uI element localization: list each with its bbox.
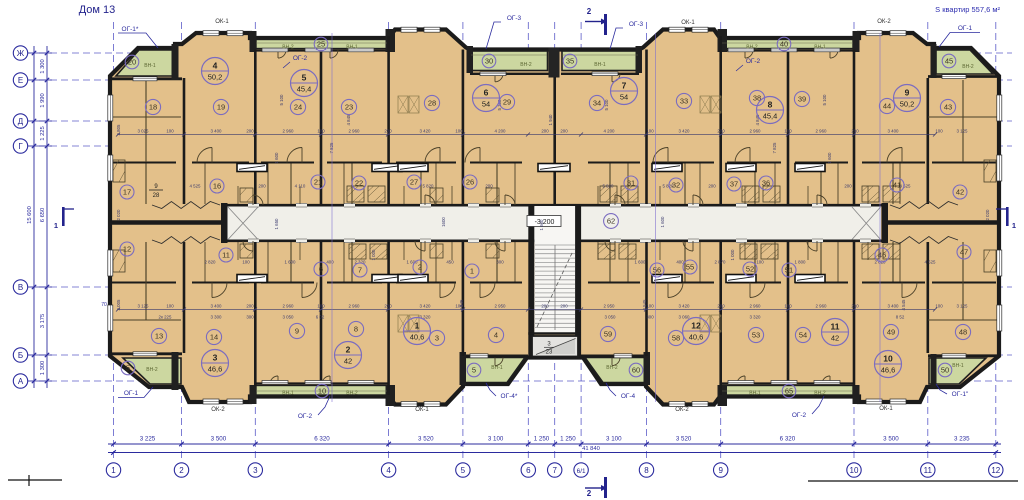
svg-text:200: 200 — [258, 184, 266, 189]
svg-text:55: 55 — [686, 263, 694, 272]
svg-text:3: 3 — [213, 353, 218, 363]
svg-text:ВН-1: ВН-1 — [282, 390, 294, 396]
svg-text:12: 12 — [691, 321, 701, 331]
svg-text:200: 200 — [851, 304, 859, 309]
svg-text:1600: 1600 — [441, 217, 446, 227]
svg-text:ОК-2: ОК-2 — [675, 407, 689, 413]
svg-text:А: А — [18, 377, 24, 386]
svg-text:4 525: 4 525 — [190, 184, 202, 189]
svg-text:ВН-2: ВН-2 — [282, 44, 294, 50]
svg-text:200: 200 — [485, 184, 493, 189]
svg-text:300: 300 — [246, 315, 254, 320]
svg-text:3 320: 3 320 — [420, 315, 432, 320]
svg-text:100: 100 — [784, 304, 792, 309]
svg-text:28: 28 — [153, 193, 160, 199]
svg-text:3 050: 3 050 — [283, 315, 295, 320]
svg-text:400: 400 — [326, 260, 334, 265]
svg-text:5: 5 — [472, 366, 476, 375]
svg-text:7 825: 7 825 — [329, 142, 334, 154]
svg-text:17: 17 — [123, 188, 131, 197]
svg-text:200: 200 — [246, 304, 254, 309]
svg-text:2 870: 2 870 — [715, 260, 727, 265]
svg-text:42: 42 — [956, 188, 964, 197]
svg-text:ОГ-2: ОГ-2 — [298, 413, 313, 420]
svg-text:4 545: 4 545 — [901, 299, 906, 311]
svg-text:59: 59 — [604, 330, 612, 339]
svg-text:1: 1 — [54, 221, 58, 230]
svg-text:Б: Б — [18, 351, 23, 360]
svg-text:60: 60 — [632, 366, 640, 375]
svg-text:3 520: 3 520 — [676, 436, 692, 443]
svg-text:52: 52 — [746, 265, 754, 274]
svg-text:65: 65 — [785, 387, 793, 396]
svg-text:23: 23 — [345, 103, 353, 112]
svg-text:7: 7 — [622, 81, 627, 91]
svg-text:11: 11 — [831, 322, 840, 332]
svg-text:3 235: 3 235 — [954, 436, 970, 443]
svg-text:1 000: 1 000 — [730, 249, 735, 261]
svg-text:Д: Д — [18, 117, 24, 126]
svg-text:2 020: 2 020 — [985, 209, 990, 221]
svg-text:9: 9 — [718, 466, 723, 475]
svg-text:4: 4 — [386, 466, 391, 475]
svg-text:2 020: 2 020 — [116, 209, 121, 221]
svg-text:2 960: 2 960 — [349, 129, 361, 134]
svg-text:53: 53 — [752, 331, 760, 340]
svg-text:ВН-1: ВН-1 — [491, 365, 503, 371]
svg-text:31: 31 — [627, 179, 635, 188]
svg-text:4 525: 4 525 — [925, 260, 937, 265]
svg-text:12: 12 — [123, 245, 131, 254]
svg-text:3 400: 3 400 — [888, 129, 900, 134]
svg-text:12: 12 — [991, 466, 1000, 475]
svg-text:15 600: 15 600 — [27, 206, 33, 224]
svg-text:43: 43 — [944, 103, 952, 112]
svg-text:1 650: 1 650 — [274, 218, 279, 230]
svg-text:200: 200 — [844, 184, 852, 189]
svg-text:ОГ-3: ОГ-3 — [507, 15, 522, 22]
svg-text:49: 49 — [887, 328, 895, 337]
svg-text:3 400: 3 400 — [211, 304, 223, 309]
svg-text:50: 50 — [941, 366, 949, 375]
svg-text:1 300: 1 300 — [40, 361, 46, 376]
svg-text:100: 100 — [756, 260, 764, 265]
svg-text:46,6: 46,6 — [208, 365, 223, 374]
svg-text:100: 100 — [166, 304, 174, 309]
svg-text:2 960: 2 960 — [750, 304, 762, 309]
svg-text:54: 54 — [620, 93, 628, 102]
svg-text:4 545: 4 545 — [459, 299, 464, 311]
svg-text:ВН-2: ВН-2 — [346, 390, 358, 396]
svg-text:2 820: 2 820 — [205, 260, 217, 265]
svg-text:13: 13 — [155, 332, 163, 341]
svg-text:41 840: 41 840 — [582, 446, 600, 452]
svg-text:100: 100 — [317, 129, 325, 134]
svg-text:3 175: 3 175 — [40, 314, 46, 329]
svg-text:200: 200 — [246, 129, 254, 134]
svg-text:3 125: 3 125 — [138, 304, 150, 309]
svg-text:100: 100 — [784, 129, 792, 134]
svg-text:ОГ-2: ОГ-2 — [746, 58, 761, 65]
svg-text:1: 1 — [1012, 221, 1016, 230]
svg-text:6/1: 6/1 — [577, 468, 586, 475]
svg-text:2: 2 — [587, 489, 592, 498]
svg-text:4 200: 4 200 — [604, 129, 616, 134]
svg-text:47: 47 — [960, 248, 968, 257]
svg-text:40,6: 40,6 — [689, 333, 704, 342]
svg-text:54: 54 — [482, 100, 490, 109]
svg-text:3 400: 3 400 — [888, 304, 900, 309]
svg-text:Дом 13: Дом 13 — [79, 4, 116, 16]
svg-text:3 025: 3 025 — [138, 129, 150, 134]
svg-text:200: 200 — [717, 129, 725, 134]
svg-text:200: 200 — [560, 304, 568, 309]
svg-text:9: 9 — [295, 327, 299, 336]
svg-text:ОГ-1: ОГ-1 — [958, 25, 973, 32]
svg-text:2 960: 2 960 — [750, 129, 762, 134]
svg-text:S квартир 557,6 м²: S квартир 557,6 м² — [935, 5, 1000, 14]
svg-text:ВН-2: ВН-2 — [520, 62, 532, 68]
svg-text:ВН-1: ВН-1 — [346, 44, 358, 50]
svg-text:29: 29 — [503, 98, 511, 107]
svg-text:3 125: 3 125 — [957, 129, 969, 134]
svg-text:3 005: 3 005 — [116, 299, 121, 311]
svg-text:200: 200 — [560, 129, 568, 134]
svg-text:33: 33 — [680, 97, 688, 106]
svg-text:1 600: 1 600 — [274, 152, 279, 164]
svg-text:28: 28 — [428, 99, 436, 108]
svg-text:1 940: 1 940 — [548, 114, 553, 126]
svg-text:11: 11 — [924, 466, 933, 475]
svg-text:45,4: 45,4 — [763, 112, 778, 121]
svg-text:1 250: 1 250 — [560, 436, 576, 443]
svg-text:2: 2 — [587, 7, 592, 16]
svg-text:30: 30 — [485, 57, 493, 66]
svg-text:4 845: 4 845 — [346, 114, 351, 126]
svg-text:ВН-2: ВН-2 — [746, 44, 758, 50]
svg-text:45: 45 — [945, 57, 953, 66]
svg-text:6: 6 — [526, 466, 531, 475]
svg-text:10: 10 — [318, 387, 326, 396]
svg-text:1 600: 1 600 — [539, 219, 544, 231]
svg-text:40: 40 — [780, 40, 788, 49]
svg-text:2 960: 2 960 — [283, 304, 295, 309]
svg-text:ОГ-4*: ОГ-4* — [501, 393, 518, 400]
svg-text:58: 58 — [672, 334, 680, 343]
svg-text:2 960: 2 960 — [816, 304, 828, 309]
svg-text:450: 450 — [446, 260, 454, 265]
svg-text:39: 39 — [798, 95, 806, 104]
svg-text:8: 8 — [644, 466, 649, 475]
svg-text:1 800: 1 800 — [795, 260, 807, 265]
svg-text:51: 51 — [785, 266, 793, 275]
svg-text:2 950: 2 950 — [604, 304, 616, 309]
svg-text:3 420: 3 420 — [679, 129, 691, 134]
svg-text:100: 100 — [646, 129, 654, 134]
svg-text:62: 62 — [607, 217, 615, 226]
svg-text:ОК-1: ОК-1 — [415, 407, 429, 413]
svg-text:46,6: 46,6 — [881, 366, 896, 375]
svg-text:В: В — [18, 283, 23, 292]
svg-text:5: 5 — [461, 466, 466, 475]
svg-text:6: 6 — [319, 265, 323, 274]
svg-text:Е: Е — [18, 76, 23, 85]
svg-text:ВН-2: ВН-2 — [606, 365, 618, 371]
svg-text:4 525: 4 525 — [900, 184, 912, 189]
svg-text:200: 200 — [717, 304, 725, 309]
svg-text:1 600: 1 600 — [285, 260, 297, 265]
svg-text:1 600: 1 600 — [407, 260, 419, 265]
svg-text:3 060: 3 060 — [679, 315, 691, 320]
svg-text:5 100: 5 100 — [279, 94, 284, 106]
svg-text:20: 20 — [128, 58, 136, 67]
svg-text:1: 1 — [415, 321, 420, 331]
svg-text:54: 54 — [799, 331, 807, 340]
svg-text:ВН-2: ВН-2 — [814, 390, 826, 396]
svg-text:400: 400 — [676, 260, 684, 265]
svg-text:3 125: 3 125 — [957, 304, 969, 309]
svg-text:3: 3 — [253, 466, 258, 475]
svg-text:40,6: 40,6 — [410, 333, 425, 342]
svg-text:6 320: 6 320 — [314, 436, 330, 443]
svg-text:2: 2 — [179, 466, 184, 475]
svg-text:6 650: 6 650 — [40, 208, 46, 223]
svg-text:3: 3 — [435, 334, 439, 343]
svg-text:ОГ-1": ОГ-1" — [952, 391, 969, 398]
svg-text:200: 200 — [708, 184, 716, 189]
svg-text:1 225: 1 225 — [40, 126, 46, 141]
svg-text:10: 10 — [883, 354, 893, 364]
svg-text:22: 22 — [355, 179, 363, 188]
svg-text:ОК-1: ОК-1 — [879, 406, 893, 412]
svg-text:2к 225: 2к 225 — [159, 315, 172, 320]
svg-text:100: 100 — [455, 129, 463, 134]
svg-text:3 225: 3 225 — [140, 436, 156, 443]
svg-text:100: 100 — [935, 304, 943, 309]
svg-text:7: 7 — [358, 266, 362, 275]
svg-text:300: 300 — [646, 315, 654, 320]
svg-text:ВН-1: ВН-1 — [594, 62, 606, 68]
svg-text:34: 34 — [593, 99, 601, 108]
svg-text:4: 4 — [213, 61, 218, 71]
svg-text:200: 200 — [384, 304, 392, 309]
svg-text:ОГ-1*: ОГ-1* — [122, 26, 139, 33]
svg-text:5 820: 5 820 — [423, 184, 435, 189]
svg-text:6 02: 6 02 — [316, 315, 325, 320]
svg-text:18: 18 — [149, 103, 157, 112]
svg-text:32: 32 — [672, 181, 680, 190]
svg-text:4 200: 4 200 — [495, 129, 507, 134]
svg-text:5: 5 — [302, 73, 307, 83]
svg-text:3 320: 3 320 — [750, 315, 762, 320]
svg-text:2 960: 2 960 — [816, 129, 828, 134]
svg-text:3 400: 3 400 — [211, 129, 223, 134]
svg-text:100: 100 — [242, 260, 250, 265]
svg-text:8: 8 — [354, 325, 358, 334]
svg-text:ОГ-4: ОГ-4 — [621, 393, 636, 400]
svg-text:25: 25 — [317, 40, 325, 49]
svg-text:200: 200 — [541, 304, 549, 309]
svg-text:45,4: 45,4 — [297, 85, 312, 94]
svg-text:2 960: 2 960 — [283, 129, 295, 134]
svg-text:35: 35 — [566, 57, 574, 66]
svg-text:5 100: 5 100 — [822, 94, 827, 106]
svg-text:1: 1 — [111, 466, 116, 475]
svg-text:9: 9 — [905, 88, 910, 98]
svg-text:Г: Г — [18, 142, 23, 151]
svg-text:24: 24 — [294, 103, 302, 112]
svg-text:ВН-1: ВН-1 — [952, 363, 964, 369]
svg-text:6: 6 — [484, 88, 489, 98]
svg-text:ВН-2: ВН-2 — [146, 367, 158, 373]
svg-text:100: 100 — [317, 304, 325, 309]
svg-text:300: 300 — [496, 260, 504, 265]
svg-text:1 300: 1 300 — [40, 59, 46, 74]
svg-text:Ж: Ж — [17, 49, 25, 58]
svg-text:ВН-1: ВН-1 — [144, 63, 156, 69]
svg-text:3 420: 3 420 — [420, 129, 432, 134]
svg-text:ОК-1: ОК-1 — [681, 20, 695, 26]
svg-text:4 110: 4 110 — [295, 184, 306, 189]
svg-text:ОК-2: ОК-2 — [211, 407, 225, 413]
svg-text:4 545: 4 545 — [642, 299, 647, 311]
svg-text:3 050: 3 050 — [605, 315, 617, 320]
svg-text:1 250: 1 250 — [534, 436, 550, 443]
svg-text:1 000: 1 000 — [371, 249, 376, 261]
svg-text:2: 2 — [418, 263, 422, 272]
svg-text:50,2: 50,2 — [208, 73, 223, 82]
svg-text:3 500: 3 500 — [211, 436, 227, 443]
svg-text:-3.200: -3.200 — [535, 219, 555, 226]
svg-text:21: 21 — [314, 178, 322, 187]
svg-text:3 100: 3 100 — [488, 436, 504, 443]
svg-text:3 805: 3 805 — [116, 124, 121, 136]
svg-text:ОГ-2: ОГ-2 — [293, 55, 308, 62]
svg-text:100: 100 — [935, 129, 943, 134]
svg-text:ОК-1: ОК-1 — [215, 19, 229, 25]
svg-text:200: 200 — [851, 129, 859, 134]
svg-text:26: 26 — [466, 178, 474, 187]
svg-text:ВН-1: ВН-1 — [814, 44, 826, 50]
svg-text:2 960: 2 960 — [349, 304, 361, 309]
svg-text:56: 56 — [653, 266, 661, 275]
svg-text:14: 14 — [210, 333, 218, 342]
svg-text:ОК-2: ОК-2 — [877, 19, 891, 25]
svg-text:48: 48 — [959, 328, 967, 337]
svg-text:6 320: 6 320 — [780, 436, 796, 443]
svg-text:ОГ-3: ОГ-3 — [629, 21, 644, 28]
svg-text:200: 200 — [384, 129, 392, 134]
svg-text:50,2: 50,2 — [900, 100, 915, 109]
svg-text:ВН-1: ВН-1 — [749, 390, 761, 396]
svg-text:5 820: 5 820 — [603, 184, 615, 189]
svg-text:11: 11 — [222, 251, 230, 260]
svg-text:200: 200 — [541, 129, 549, 134]
svg-text:42: 42 — [344, 357, 352, 366]
svg-text:7 825: 7 825 — [772, 142, 777, 154]
svg-text:ОГ-2: ОГ-2 — [792, 412, 807, 419]
svg-text:1 990: 1 990 — [40, 93, 46, 108]
svg-text:46: 46 — [878, 251, 886, 260]
svg-text:3 520: 3 520 — [418, 436, 434, 443]
svg-text:23: 23 — [546, 350, 553, 356]
svg-text:42: 42 — [831, 334, 839, 343]
svg-text:1 600: 1 600 — [660, 216, 665, 228]
svg-text:8 52: 8 52 — [896, 315, 905, 320]
svg-text:19: 19 — [217, 103, 225, 112]
svg-text:70: 70 — [101, 302, 107, 308]
svg-text:2 950: 2 950 — [495, 304, 507, 309]
svg-text:2: 2 — [346, 345, 351, 355]
svg-text:10: 10 — [850, 466, 859, 475]
svg-text:3 500: 3 500 — [883, 436, 899, 443]
svg-text:27: 27 — [410, 178, 418, 187]
svg-text:100: 100 — [166, 129, 174, 134]
svg-text:ОГ-1: ОГ-1 — [124, 390, 139, 397]
svg-text:3 420: 3 420 — [679, 304, 691, 309]
svg-text:5: 5 — [126, 364, 130, 373]
svg-text:36: 36 — [762, 179, 770, 188]
svg-text:16: 16 — [213, 182, 221, 191]
svg-text:3 420: 3 420 — [420, 304, 432, 309]
svg-text:8: 8 — [768, 100, 773, 110]
svg-text:3 100: 3 100 — [606, 436, 622, 443]
svg-text:1 600: 1 600 — [635, 260, 647, 265]
svg-text:1: 1 — [470, 267, 474, 276]
svg-text:100: 100 — [646, 304, 654, 309]
svg-text:ВН-2: ВН-2 — [962, 64, 974, 70]
svg-text:1 600: 1 600 — [827, 152, 832, 164]
svg-text:41: 41 — [893, 181, 901, 190]
svg-text:4: 4 — [494, 331, 498, 340]
svg-text:44: 44 — [883, 102, 891, 111]
svg-text:37: 37 — [730, 180, 738, 189]
svg-text:7: 7 — [552, 466, 557, 475]
svg-text:3 300: 3 300 — [211, 315, 223, 320]
